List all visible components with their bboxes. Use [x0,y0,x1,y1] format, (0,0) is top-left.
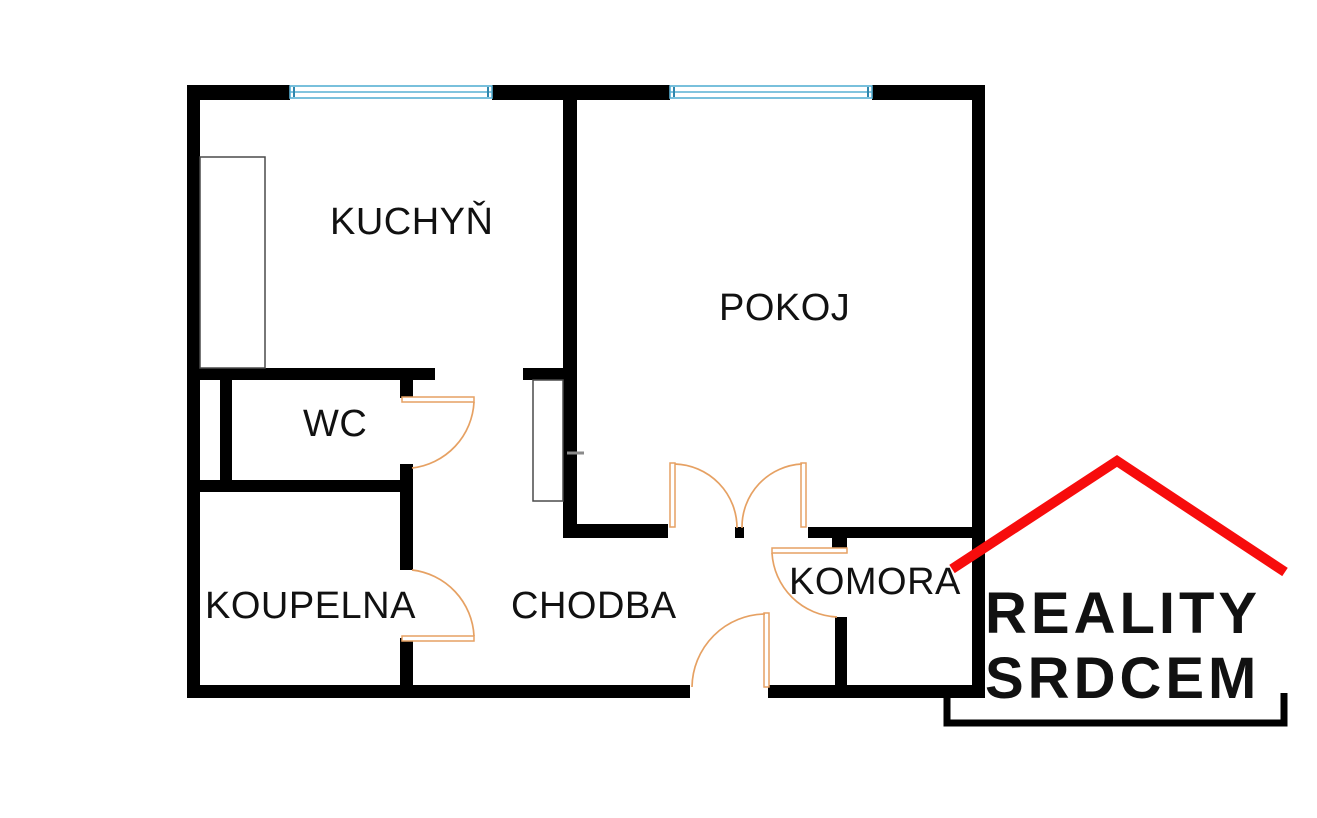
entrance-door [692,613,769,687]
wall-divider-top-stub [400,380,413,398]
wall-pokoj-south-west [563,524,668,538]
room-label-wc: WC [303,405,367,443]
room-label-koupelna: KOUPELNA [205,587,416,625]
double-door-left-arc [675,464,737,528]
wall-pokoj-south-east [808,527,985,538]
double-door-right-leaf [801,463,806,527]
koupelna-door-leaf [402,636,474,641]
floorplan-canvas: KUCHYŇ POKOJ WC KOUPELNA CHODBA KOMORA R… [0,0,1317,818]
room-label-chodba: CHODBA [511,587,677,625]
wall-bottom-right [768,685,985,698]
wc-door-arc [412,402,474,468]
pokoj-window [670,86,872,98]
wall-double-door-center-stub [735,527,744,538]
wall-kitchen-south-west [187,368,435,380]
komora-door-leaf [772,548,847,553]
wall-left-outer [187,85,200,698]
wall-top-middle [492,85,670,100]
logo-roof-icon [952,461,1285,572]
wall-wc-west-shaft [220,380,232,492]
wall-pokoj-west [563,85,577,538]
double-door-left-leaf [670,463,675,527]
wall-wc-south [187,480,413,492]
koupelna-door-arc [412,570,474,636]
wall-divider-bottom [400,638,413,698]
entrance-door-arc [692,614,765,687]
wc-door [402,397,474,468]
double-door-right-arc [742,464,802,528]
wall-komora-west [835,617,847,698]
wc-door-leaf [402,397,474,402]
logo-text-line2: SRDCEM [985,650,1260,708]
wall-divider-middle [400,464,413,570]
wall-top-left [187,85,290,100]
pokoj-double-door [670,463,806,528]
wall-top-right [872,85,985,100]
hall-radiator [533,380,563,501]
doors [402,397,847,687]
logo-text-line1: REALITY [985,585,1261,643]
room-label-kuchyn: KUCHYŇ [330,203,493,241]
kitchen-counter [200,157,265,368]
room-label-pokoj: POKOJ [719,289,850,327]
kitchen-window [290,86,492,98]
wall-right-outer [972,85,985,698]
entrance-door-leaf [764,613,769,687]
wall-bottom-left [187,685,690,698]
room-label-komora: KOMORA [789,563,961,601]
